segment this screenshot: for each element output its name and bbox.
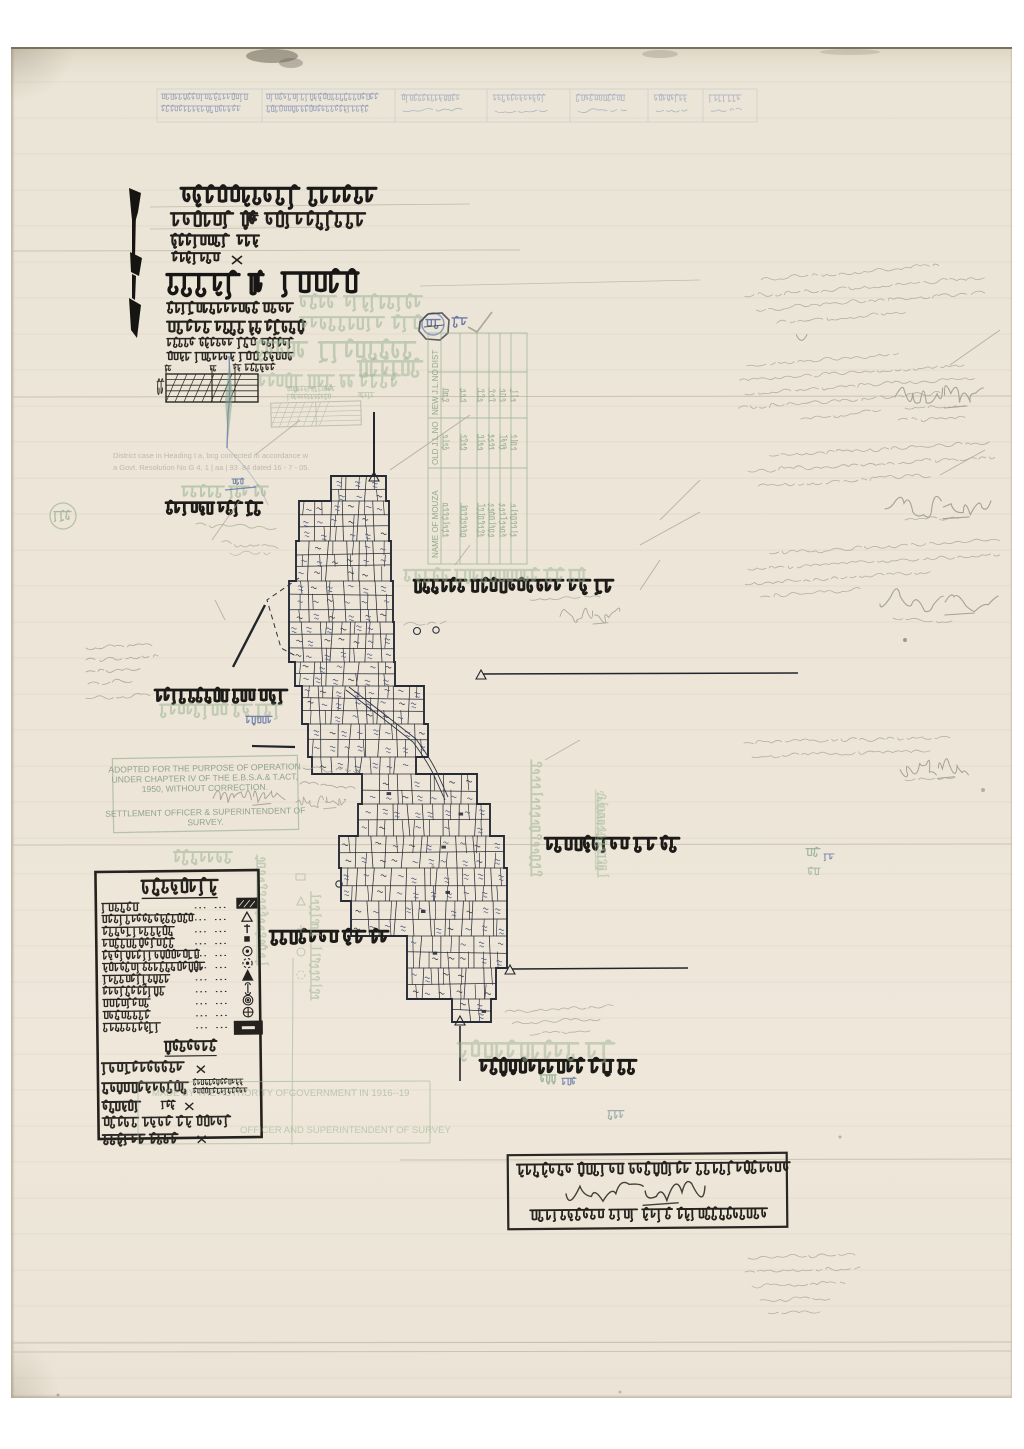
svg-text:OLD J.L.NO: OLD J.L.NO xyxy=(431,421,440,465)
svg-text:NAME OF MOUZA: NAME OF MOUZA xyxy=(431,490,440,558)
svg-text:OFFICER AND SUPERINTENDENT OF: OFFICER AND SUPERINTENDENT OF SURVEY xyxy=(240,1125,451,1136)
svg-text:DIST: DIST xyxy=(431,350,440,368)
svg-text:SURVEY.: SURVEY. xyxy=(187,817,224,828)
svg-text:MADE BY THE AUTHORITY OFGOVERN: MADE BY THE AUTHORITY OFGOVERNMENT IN 19… xyxy=(152,1088,409,1099)
svg-text:a Govt. Resolution No G 4,: a Govt. Resolution No G 4, 1 | aa | 93 .… xyxy=(113,463,310,472)
svg-text:District case in Heading I a,: District case in Heading I a, bcg correc… xyxy=(113,451,309,460)
svg-text:NEW J.L.NO: NEW J.L.NO xyxy=(431,369,440,415)
